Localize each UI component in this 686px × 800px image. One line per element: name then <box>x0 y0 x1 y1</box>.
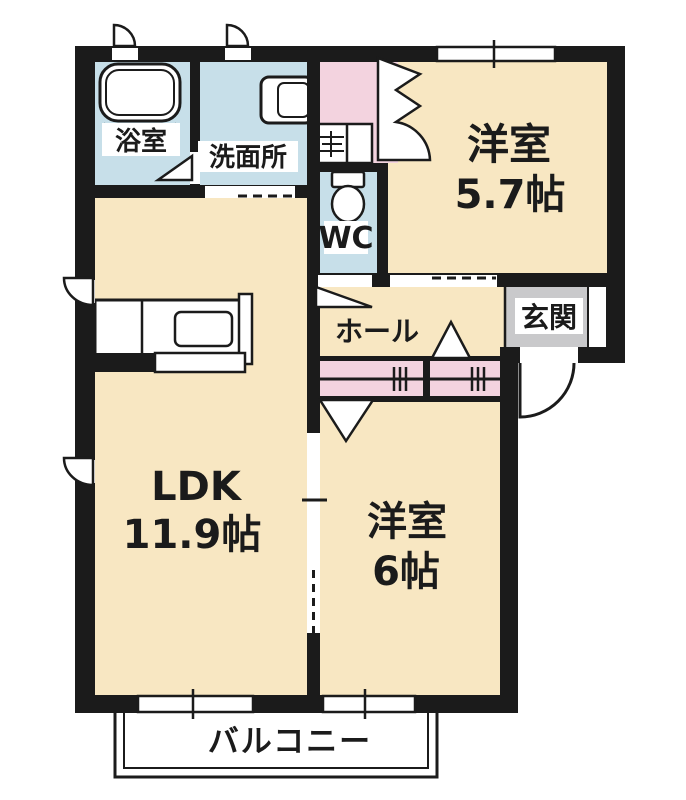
ldk-size: 11.9帖 <box>123 512 262 558</box>
ldk-floor <box>95 185 320 697</box>
window-bedroom2 <box>323 696 415 712</box>
storage-cells <box>316 124 372 163</box>
entrance-door-recess <box>588 285 607 351</box>
closet-row <box>313 356 500 402</box>
vent-window-bath-icon <box>112 25 138 60</box>
bedroom1-size: 5.7帖 <box>455 172 566 218</box>
bedroom1-label: 洋室 <box>467 120 551 169</box>
toilet-icon <box>332 172 364 222</box>
window-bedroom1 <box>437 47 555 61</box>
wall-wc-right <box>377 163 388 287</box>
window-ldk <box>138 696 253 712</box>
wc-label: WC <box>318 221 373 256</box>
entrance-door-opening <box>520 347 578 363</box>
bath-label: 浴室 <box>115 126 167 157</box>
ldk-label: LDK <box>151 464 243 510</box>
wc-door-opening <box>318 275 372 287</box>
entrance-label: 玄関 <box>521 301 577 334</box>
wall-right-lower <box>500 352 518 713</box>
floor-plan-page: 浴室 洗面所 WC 洋室 5.7帖 ホール 玄関 LDK 11.9帖 洋室 6帖… <box>0 0 686 800</box>
bedroom2-size: 6帖 <box>372 549 440 595</box>
entrance-door-swing-icon <box>520 363 574 417</box>
vent-left-upper-icon <box>64 278 95 305</box>
vent-window-washroom-icon <box>225 25 251 60</box>
wall-right-upper <box>607 46 625 363</box>
kitchen-counter <box>95 294 252 372</box>
hall-label: ホール <box>335 315 419 348</box>
bathtub-icon <box>100 64 180 129</box>
bedroom2-label: 洋室 <box>367 499 447 545</box>
kitchen-sink-icon <box>175 312 232 346</box>
wall-above-wc <box>307 163 388 172</box>
washroom-label: 洗面所 <box>209 143 287 173</box>
vent-left-lower-icon <box>64 458 95 485</box>
wall-left <box>75 46 95 713</box>
floor-plan-drawing: 浴室 洗面所 WC 洋室 5.7帖 ホール 玄関 LDK 11.9帖 洋室 6帖… <box>0 0 686 800</box>
washbasin-icon <box>261 77 313 123</box>
balcony-label: バルコニー <box>208 724 372 760</box>
